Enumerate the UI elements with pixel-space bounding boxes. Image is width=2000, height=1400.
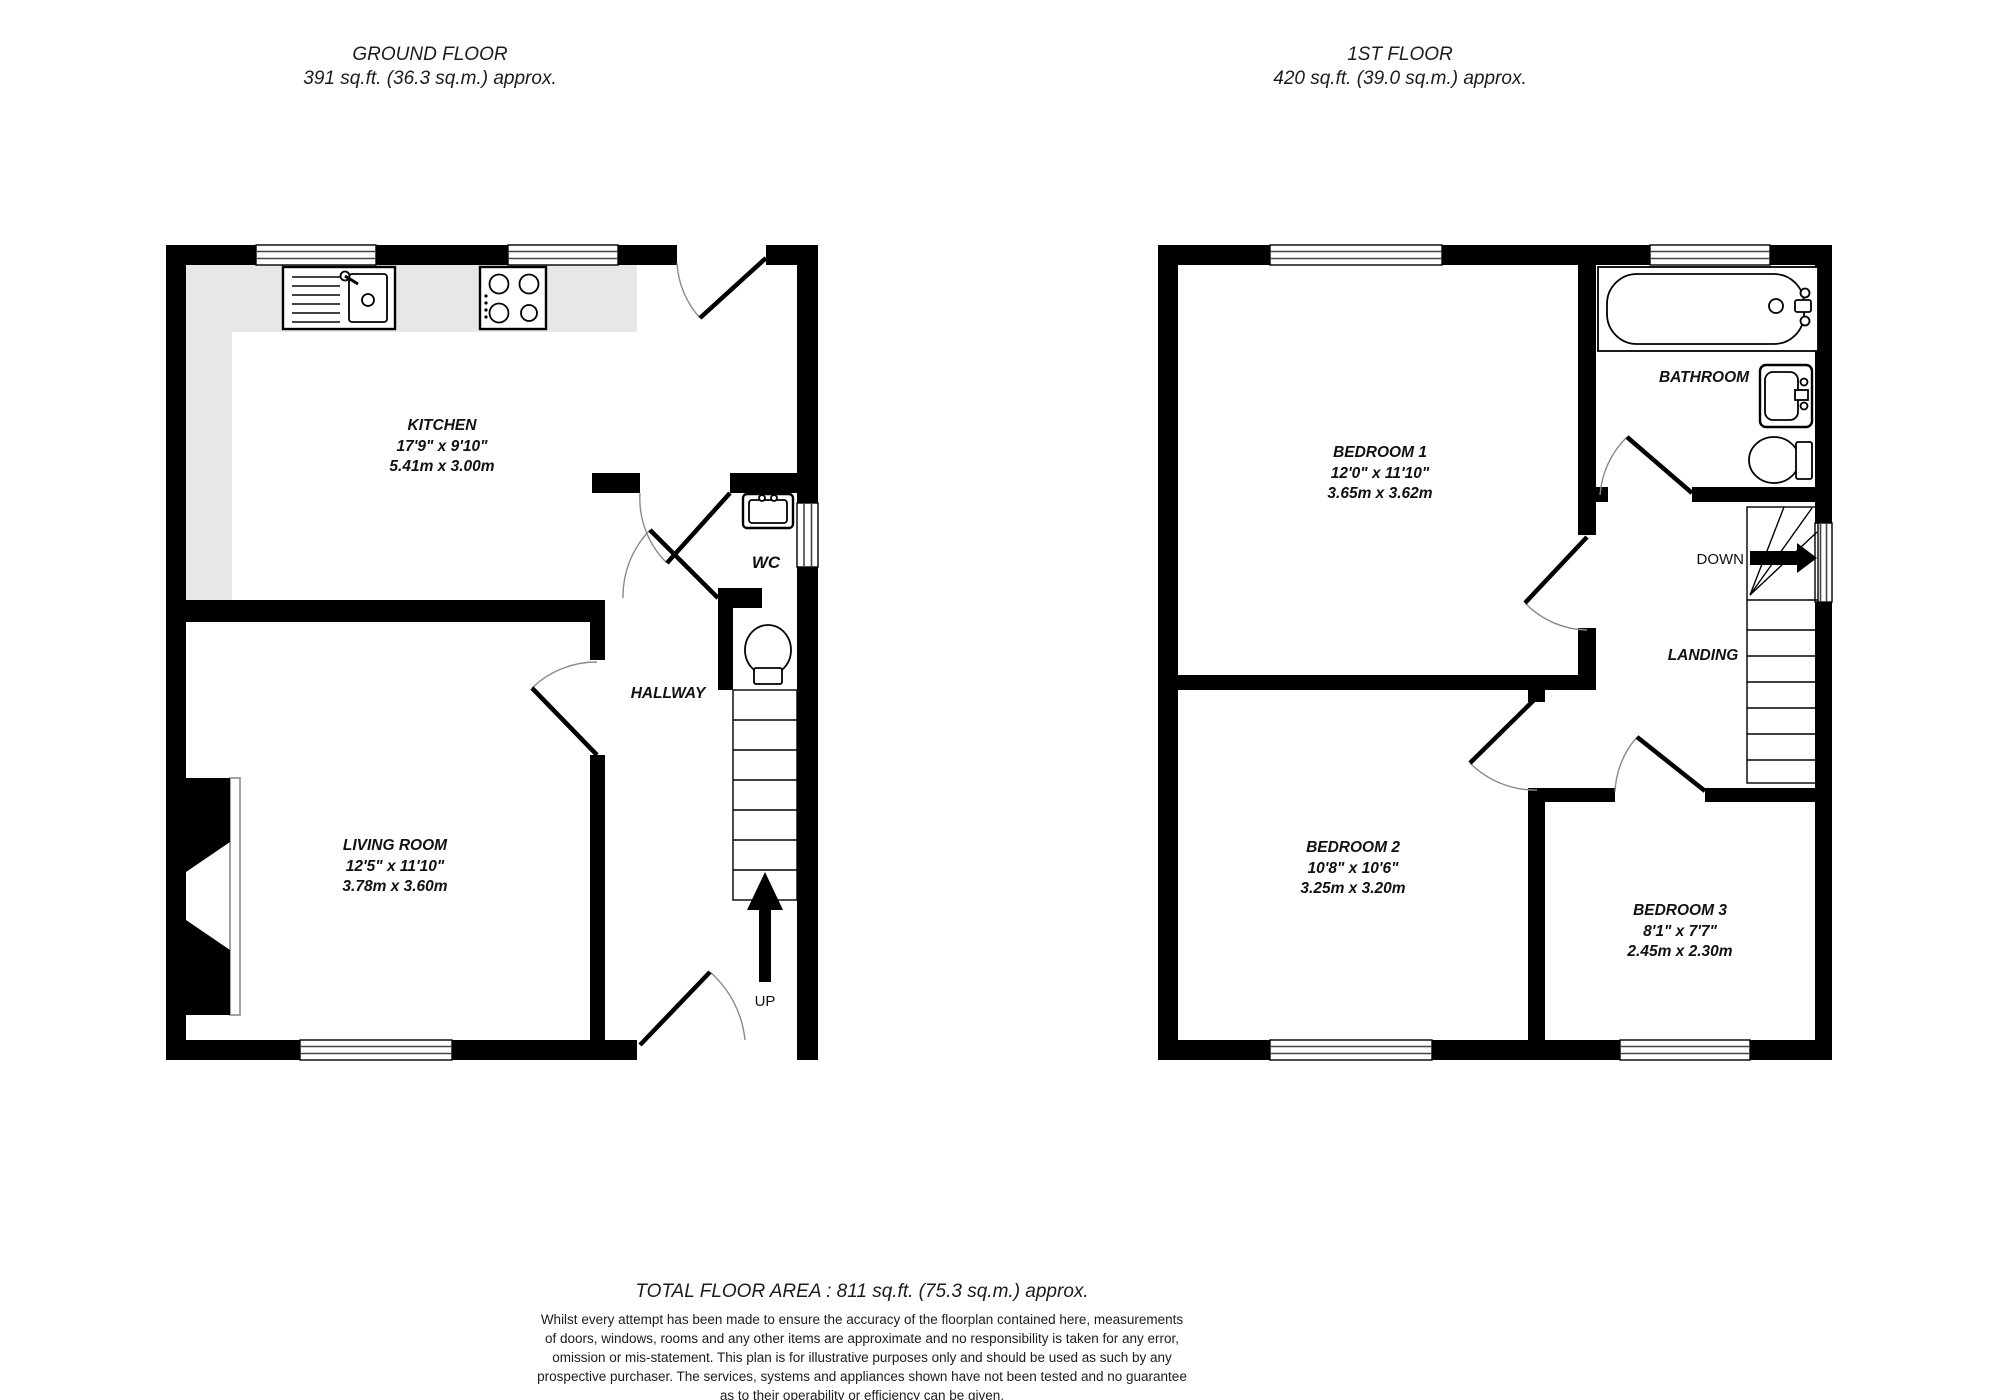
bathroom-sink-icon — [1760, 365, 1812, 427]
first-floor-title: 1ST FLOOR — [1347, 44, 1453, 65]
kitchen-label: KITCHEN — [408, 417, 478, 434]
kitchen-dim-metric: 5.41m x 3.00m — [389, 458, 494, 475]
total-floor-area: TOTAL FLOOR AREA : 811 sq.ft. (75.3 sq.m… — [635, 1281, 1088, 1302]
bathroom-door — [1600, 437, 1692, 495]
ground-floor-walls — [166, 245, 818, 1060]
bedroom2-window-icon — [1270, 1040, 1432, 1060]
living-room-dim-metric: 3.78m x 3.60m — [342, 878, 447, 895]
bedroom2-dim-metric: 3.25m x 3.20m — [1300, 880, 1405, 897]
bedroom3-dim-metric: 2.45m x 2.30m — [1626, 943, 1732, 960]
living-room-door — [532, 662, 597, 755]
front-door — [640, 972, 745, 1045]
hallway-label: HALLWAY — [631, 685, 707, 702]
back-door — [677, 258, 766, 318]
ground-floor-title: GROUND FLOOR — [352, 44, 507, 65]
bedroom3-door — [1615, 737, 1705, 792]
floorplan-page: GROUND FLOOR 391 sq.ft. (36.3 sq.m.) app… — [0, 0, 2000, 1400]
stairs-down-icon — [1747, 507, 1818, 783]
bedroom1-dim-imperial: 12'0" x 11'10" — [1331, 465, 1430, 482]
wc-door — [640, 493, 730, 563]
ground-floor-plan: GROUND FLOOR 391 sq.ft. (36.3 sq.m.) app… — [166, 44, 818, 1060]
living-room-label: LIVING ROOM — [343, 837, 448, 854]
disclaimer-line-1: Whilst every attempt has been made to en… — [541, 1312, 1184, 1327]
footer: TOTAL FLOOR AREA : 811 sq.ft. (75.3 sq.m… — [537, 1281, 1187, 1400]
wc-sink-icon — [743, 494, 793, 528]
landing-label: LANDING — [1668, 647, 1739, 664]
bedroom1-label: BEDROOM 1 — [1333, 444, 1427, 461]
bedroom2-label: BEDROOM 2 — [1306, 839, 1400, 856]
fireplace-icon — [186, 778, 240, 1015]
kitchen-window-icon — [256, 245, 376, 265]
bedroom3-label: BEDROOM 3 — [1633, 902, 1727, 919]
bedroom1-door — [1525, 537, 1587, 630]
bedroom1-dim-metric: 3.65m x 3.62m — [1327, 485, 1432, 502]
bathroom-window-icon — [1650, 245, 1770, 265]
floorplan-drawing: GROUND FLOOR 391 sq.ft. (36.3 sq.m.) app… — [0, 0, 2000, 1400]
bedroom2-dim-imperial: 10'8" x 10'6" — [1307, 860, 1399, 877]
toilet-icon — [745, 625, 791, 684]
wc-window-icon — [797, 503, 818, 567]
bedroom3-window-icon — [1620, 1040, 1750, 1060]
ground-floor-windows — [256, 245, 818, 1060]
disclaimer-line-2: of doors, windows, rooms and any other i… — [545, 1331, 1179, 1346]
ground-floor-area: 391 sq.ft. (36.3 sq.m.) approx. — [303, 68, 556, 89]
disclaimer-line-5: as to their operability or efficiency ca… — [720, 1388, 1004, 1400]
hob-icon — [480, 267, 546, 329]
up-label: UP — [755, 993, 776, 1010]
bath-icon — [1598, 267, 1818, 351]
wc-label: WC — [752, 553, 781, 572]
down-label: DOWN — [1697, 551, 1745, 568]
first-floor-toilet-icon — [1749, 437, 1812, 483]
bedroom3-dim-imperial: 8'1" x 7'7" — [1643, 923, 1717, 940]
kitchen-dim-imperial: 17'9" x 9'10" — [396, 438, 488, 455]
stairs-up-icon — [733, 690, 797, 982]
bedroom1-window-icon — [1270, 245, 1442, 265]
living-room-window-icon — [300, 1040, 452, 1060]
first-floor-area: 420 sq.ft. (39.0 sq.m.) approx. — [1273, 68, 1526, 89]
disclaimer-line-3: omission or mis-statement. This plan is … — [552, 1350, 1172, 1365]
disclaimer-line-4: prospective purchaser. The services, sys… — [537, 1369, 1187, 1384]
living-room-dim-imperial: 12'5" x 11'10" — [346, 858, 445, 875]
kitchen-door — [623, 530, 718, 598]
bedroom2-door — [1470, 699, 1537, 790]
kitchen-sink-icon — [283, 267, 395, 329]
kitchen-window2-icon — [508, 245, 618, 265]
first-floor-plan: 1ST FLOOR 420 sq.ft. (39.0 sq.m.) approx… — [1158, 44, 1832, 1060]
bathroom-label: BATHROOM — [1659, 369, 1750, 386]
